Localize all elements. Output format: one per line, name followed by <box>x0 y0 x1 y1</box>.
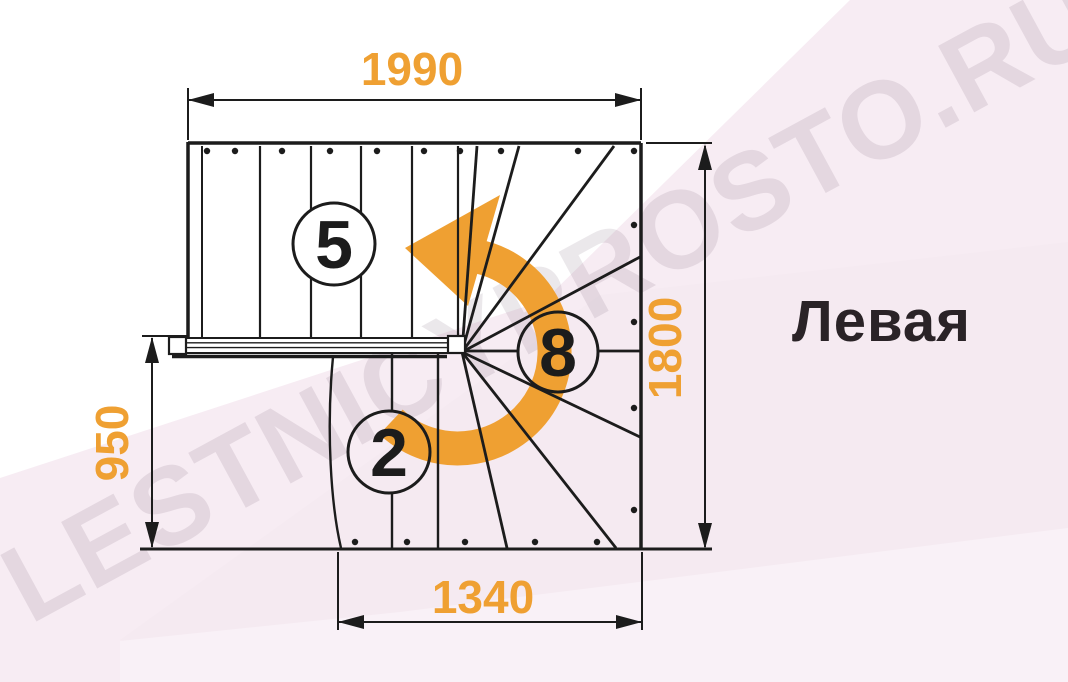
winder-count: 8 <box>539 315 577 391</box>
winder-newel-post <box>448 336 465 353</box>
handrail-left-post <box>169 337 186 354</box>
dimension-left-height: 950 <box>86 405 138 482</box>
stair-plan-diagram: LESTNICYPROSTO.RU <box>0 0 1068 682</box>
handrail <box>169 336 465 357</box>
stair-plan-page: LESTNICYPROSTO.RU <box>0 0 1068 682</box>
upper-flight-count: 5 <box>315 207 353 283</box>
lower-flight-count: 2 <box>370 415 408 491</box>
dimension-bottom-width: 1340 <box>432 571 534 623</box>
dimension-right-height: 1800 <box>639 297 691 399</box>
stair-type-title: Левая <box>792 289 971 354</box>
dimension-top-width: 1990 <box>361 43 463 95</box>
